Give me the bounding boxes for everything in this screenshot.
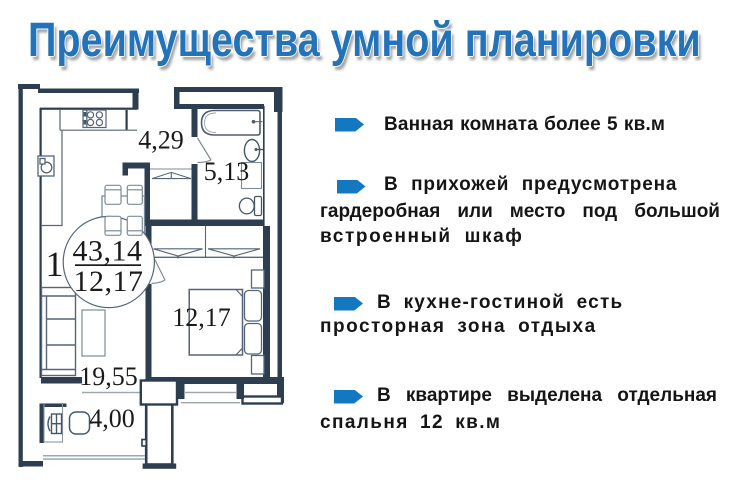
svg-text:43,14: 43,14 xyxy=(73,235,143,268)
svg-text:5,13: 5,13 xyxy=(204,157,250,186)
svg-text:1: 1 xyxy=(46,244,64,284)
svg-text:4,29: 4,29 xyxy=(138,126,184,155)
svg-text:12,17: 12,17 xyxy=(172,303,231,332)
svg-text:4,00: 4,00 xyxy=(89,404,135,433)
svg-text:19,55: 19,55 xyxy=(79,362,138,391)
svg-text:12,17: 12,17 xyxy=(74,265,144,298)
